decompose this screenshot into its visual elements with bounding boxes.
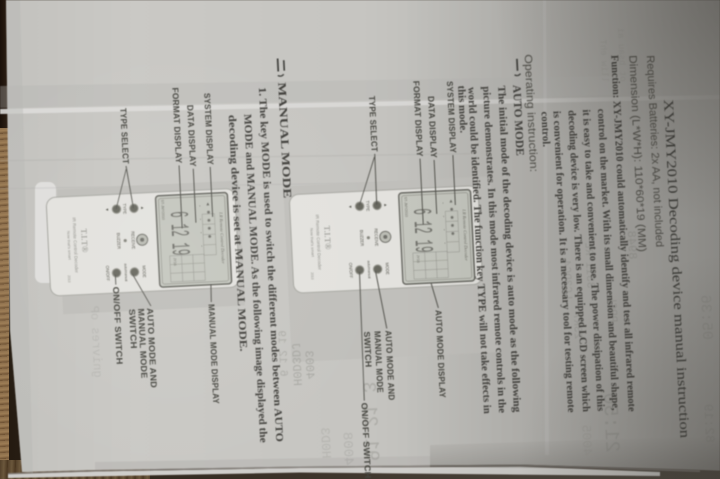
svg-text:FORMAT DISPLAY: FORMAT DISPLAY	[411, 81, 424, 158]
svg-text:H0D3: H0D3	[317, 427, 334, 459]
svg-text:SWITCH: SWITCH	[127, 309, 138, 349]
svg-text:this mode.: this mode.	[455, 85, 469, 133]
svg-text:TYPE SELECT: TYPE SELECT	[118, 108, 130, 164]
svg-text:H0D3DJ: H0D3DJ	[288, 342, 304, 386]
svg-text:AUTO MODE DISPLAY: AUTO MODE DISPLAY	[433, 310, 446, 399]
svg-text:control.: control.	[538, 111, 552, 147]
svg-text:TYPE SELECT: TYPE SELECT	[367, 96, 379, 152]
svg-text:MANUAL MODE DISPLAY: MANUAL MODE DISPLAY	[206, 304, 220, 405]
svg-text:XY-JMY2010 Decoding device man: XY-JMY2010 Decoding device manual instru…	[660, 99, 692, 438]
svg-text:AUTO MODE AND: AUTO MODE AND	[383, 330, 395, 400]
svg-text:82:19: 82:19	[700, 404, 717, 444]
svg-text:DATA DISPLAY: DATA DISPLAY	[426, 96, 438, 159]
svg-text:4005: 4005	[578, 424, 595, 456]
svg-text:05:36: 05:36	[696, 294, 715, 340]
svg-text:DATA DISPLAY: DATA DISPLAY	[185, 105, 197, 168]
svg-text:SYSTEM DISPLAY: SYSTEM DISPLAY	[202, 93, 215, 166]
svg-text:4008: 4008	[338, 432, 356, 466]
svg-text:SWITCH: SWITCH	[362, 331, 373, 367]
svg-text:MANUAL MODE: MANUAL MODE	[275, 82, 295, 199]
svg-text:FORMAT DISPLAY: FORMAT DISPLAY	[170, 87, 183, 164]
svg-text:gnivres oP: gnivres oP	[87, 305, 105, 378]
svg-text:MANUAL MODE: MANUAL MODE	[372, 331, 384, 394]
svg-text:ON/OFF SWITCH: ON/OFF SWITCH	[111, 286, 124, 364]
